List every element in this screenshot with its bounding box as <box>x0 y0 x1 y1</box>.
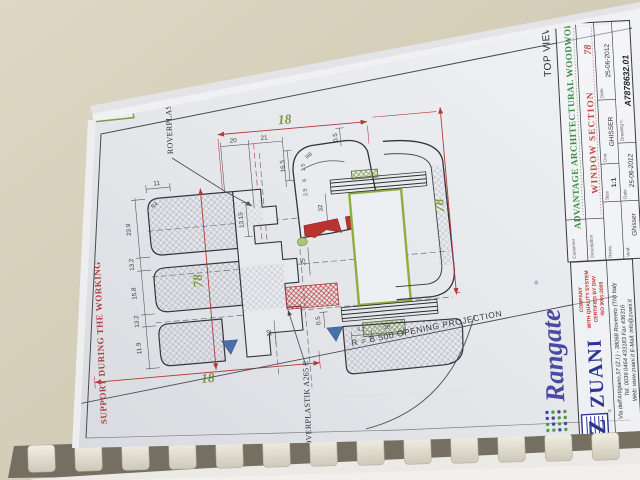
dim-12: 12 <box>266 329 274 337</box>
zuani-registered-mark: ® <box>607 408 613 412</box>
customer-label: Customer <box>571 238 577 259</box>
dim-16-5: 16.5 <box>279 159 287 172</box>
dim-2-5: 2.5 <box>303 188 310 196</box>
drawing-photo-canvas: 20 21 13.15 0.5 16.5 3.5 6 2.5 25 32 12 … <box>0 0 640 480</box>
binding-tooth <box>545 434 573 462</box>
size-value: 1:1 <box>611 177 619 187</box>
verif-value: Ghisser <box>630 212 638 236</box>
zuani-brand: ZUANI <box>584 338 610 409</box>
rangate-brand: Rangate <box>536 308 571 403</box>
binding-tooth <box>404 437 432 465</box>
dim-green-top-18: 18 <box>277 111 292 127</box>
verif-label: Verif. <box>625 246 631 257</box>
dim-6: 6 <box>302 179 308 183</box>
dim-left-chain-4: 13.2 <box>133 315 141 328</box>
binding-tooth <box>357 438 385 466</box>
drw-label: Drw. <box>602 153 607 162</box>
dim-green-middle-78: 78 <box>190 273 206 288</box>
dim-11: 11 <box>153 180 161 188</box>
binding-tooth <box>592 433 620 461</box>
dim-25: 25 <box>300 257 308 265</box>
revision-label: Revis. <box>607 245 613 258</box>
dim-20: 20 <box>229 137 237 145</box>
zuani-block: Z ® ZUANI COMPANY WITH QUALITY SYSTEM CE… <box>570 259 640 444</box>
binding-tooth <box>28 445 56 473</box>
dim-13-15: 13.15 <box>237 211 245 228</box>
photo-of-technical-drawing: 20 21 13.15 0.5 16.5 3.5 6 2.5 25 32 12 … <box>0 0 640 480</box>
dim-0-5-top: 0.5 <box>332 132 340 142</box>
binding-tooth <box>310 439 338 467</box>
dim-32: 32 <box>317 204 325 212</box>
dim-3-5: 3.5 <box>300 163 307 171</box>
dim-5-2: 5.2 <box>357 327 365 334</box>
binding-tooth <box>498 435 526 463</box>
date-label: Date <box>599 88 605 98</box>
frame-profile-block <box>147 192 238 256</box>
dim-green-right-78: 78 <box>431 198 447 213</box>
dim-0-5-bottom: 0.5 <box>315 315 323 325</box>
dim-left-chain-1: 23.9 <box>125 223 133 236</box>
compression-seal <box>285 283 339 309</box>
binding-tooth <box>451 436 479 464</box>
centre-profile-hatch <box>239 264 287 312</box>
size-label: Size <box>604 190 609 200</box>
dim-left-chain-3: 15.8 <box>131 287 139 300</box>
dim-21: 21 <box>260 134 268 142</box>
rangate-registered-mark: ® <box>533 280 540 285</box>
glass-unit <box>349 189 411 305</box>
dim-left-chain-5: 11.9 <box>135 342 143 355</box>
verif-date-label: Date <box>622 189 628 199</box>
dim-left-chain-2: 13.2 <box>128 258 136 271</box>
